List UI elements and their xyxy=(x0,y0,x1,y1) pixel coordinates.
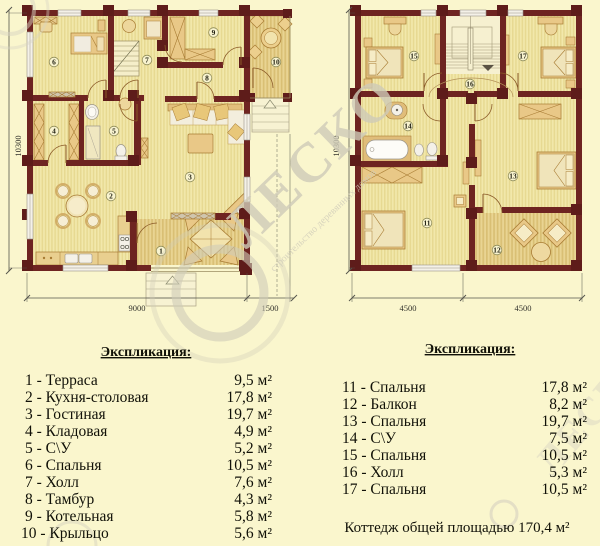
svg-text:11: 11 xyxy=(424,219,431,228)
svg-text:8,2 м²: 8,2 м² xyxy=(549,396,587,413)
svg-text:Экспликация:: Экспликация: xyxy=(425,342,516,357)
svg-text:10,5 м²: 10,5 м² xyxy=(542,447,588,464)
svg-text:5,2 м²: 5,2 м² xyxy=(234,440,272,457)
svg-text:16 - Холл: 16 - Холл xyxy=(342,464,404,481)
svg-text:4500: 4500 xyxy=(400,303,417,313)
svg-text:15: 15 xyxy=(410,52,418,61)
svg-text:15 - Спальня: 15 - Спальня xyxy=(342,447,426,464)
svg-text:10300: 10300 xyxy=(13,135,23,156)
svg-text:14 - С\У: 14 - С\У xyxy=(342,430,396,447)
svg-text:2 - Кухня-столовая: 2 - Кухня-столовая xyxy=(25,389,149,406)
svg-text:Экспликация:: Экспликация: xyxy=(101,345,192,360)
svg-text:9,5 м²: 9,5 м² xyxy=(234,372,272,389)
svg-text:17,8 м²: 17,8 м² xyxy=(542,379,588,396)
svg-text:9 - Котельная: 9 - Котельная xyxy=(25,508,114,525)
svg-text:2: 2 xyxy=(109,192,113,201)
svg-text:13: 13 xyxy=(509,172,517,181)
svg-text:5: 5 xyxy=(112,127,116,136)
svg-text:10,5 м²: 10,5 м² xyxy=(542,481,588,498)
svg-text:4,9 м²: 4,9 м² xyxy=(234,423,272,440)
svg-text:9000: 9000 xyxy=(129,303,146,313)
svg-text:11 - Спальня: 11 - Спальня xyxy=(342,379,426,396)
svg-text:5,6 м²: 5,6 м² xyxy=(234,525,272,542)
svg-text:19,7 м²: 19,7 м² xyxy=(542,413,588,430)
svg-text:6: 6 xyxy=(52,58,56,67)
svg-text:12 - Балкон: 12 - Балкон xyxy=(342,396,417,413)
svg-text:3: 3 xyxy=(188,173,192,182)
svg-text:14: 14 xyxy=(404,122,412,131)
svg-text:17: 17 xyxy=(519,52,527,61)
svg-text:Коттедж общей площадью 170,4 м: Коттедж общей площадью 170,4 м² xyxy=(344,520,570,536)
svg-text:8 - Тамбур: 8 - Тамбур xyxy=(25,491,94,508)
svg-text:7,6 м²: 7,6 м² xyxy=(234,474,272,491)
svg-text:4 - Кладовая: 4 - Кладовая xyxy=(25,423,107,440)
svg-text:7 - Холл: 7 - Холл xyxy=(25,474,79,491)
svg-text:8: 8 xyxy=(205,74,209,83)
svg-text:13 - Спальня: 13 - Спальня xyxy=(342,413,426,430)
svg-text:17,8 м²: 17,8 м² xyxy=(227,389,273,406)
svg-text:16: 16 xyxy=(466,80,474,89)
svg-text:9: 9 xyxy=(212,28,216,37)
svg-text:3 - Гостиная: 3 - Гостиная xyxy=(25,406,106,423)
svg-text:17 - Спальня: 17 - Спальня xyxy=(342,481,426,498)
svg-text:10,5 м²: 10,5 м² xyxy=(227,457,273,474)
svg-text:7: 7 xyxy=(145,56,149,65)
svg-text:10: 10 xyxy=(272,58,280,67)
svg-text:19,7 м²: 19,7 м² xyxy=(227,406,273,423)
svg-text:4500: 4500 xyxy=(515,303,532,313)
svg-text:4: 4 xyxy=(52,127,56,136)
svg-text:12: 12 xyxy=(493,246,501,255)
svg-text:1 - Терраса: 1 - Терраса xyxy=(25,372,98,389)
svg-text:6 - Спальня: 6 - Спальня xyxy=(25,457,102,474)
svg-text:5,8 м²: 5,8 м² xyxy=(234,508,272,525)
svg-text:4,3 м²: 4,3 м² xyxy=(234,491,272,508)
svg-text:5 - С\У: 5 - С\У xyxy=(25,440,71,457)
svg-text:10 - Крыльцо: 10 - Крыльцо xyxy=(21,525,109,542)
svg-text:5,3 м²: 5,3 м² xyxy=(549,464,587,481)
svg-text:7,5 м²: 7,5 м² xyxy=(549,430,587,447)
